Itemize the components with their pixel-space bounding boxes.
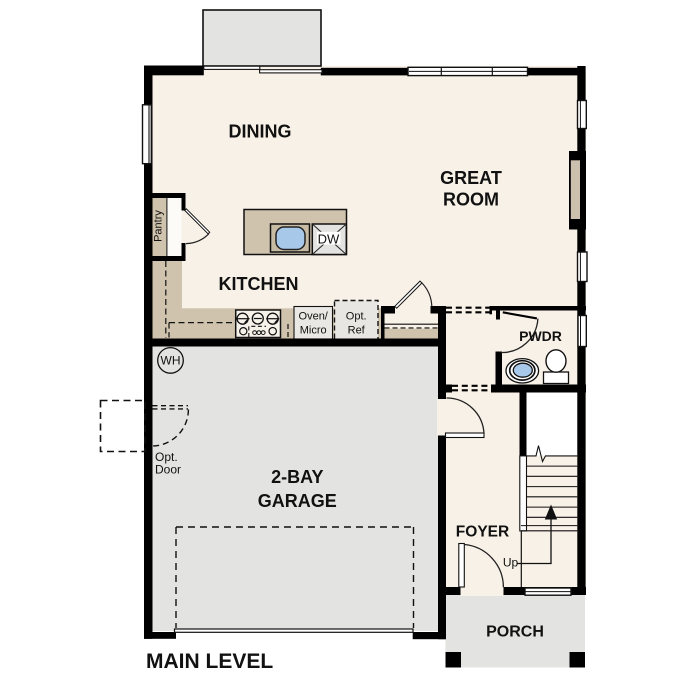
svg-text:PORCH: PORCH [486, 624, 544, 641]
svg-text:ROOM: ROOM [443, 190, 499, 210]
svg-text:WH: WH [161, 354, 181, 368]
svg-text:DINING: DINING [229, 122, 292, 142]
svg-text:2-BAY: 2-BAY [271, 467, 323, 487]
svg-text:FOYER: FOYER [456, 524, 509, 541]
svg-text:Ref: Ref [348, 325, 366, 337]
svg-text:PWDR: PWDR [519, 328, 562, 344]
svg-text:Door: Door [155, 463, 181, 477]
svg-text:KITCHEN: KITCHEN [219, 274, 299, 294]
svg-text:GARAGE: GARAGE [258, 491, 337, 511]
svg-text:GREAT: GREAT [440, 168, 502, 188]
svg-text:Up: Up [503, 556, 519, 570]
svg-text:DW: DW [318, 232, 340, 247]
svg-text:Opt.: Opt. [346, 311, 367, 323]
svg-text:Oven/: Oven/ [299, 311, 329, 323]
svg-text:Micro: Micro [300, 325, 327, 337]
svg-text:Pantry: Pantry [153, 210, 165, 242]
svg-text:MAIN LEVEL: MAIN LEVEL [146, 650, 273, 673]
